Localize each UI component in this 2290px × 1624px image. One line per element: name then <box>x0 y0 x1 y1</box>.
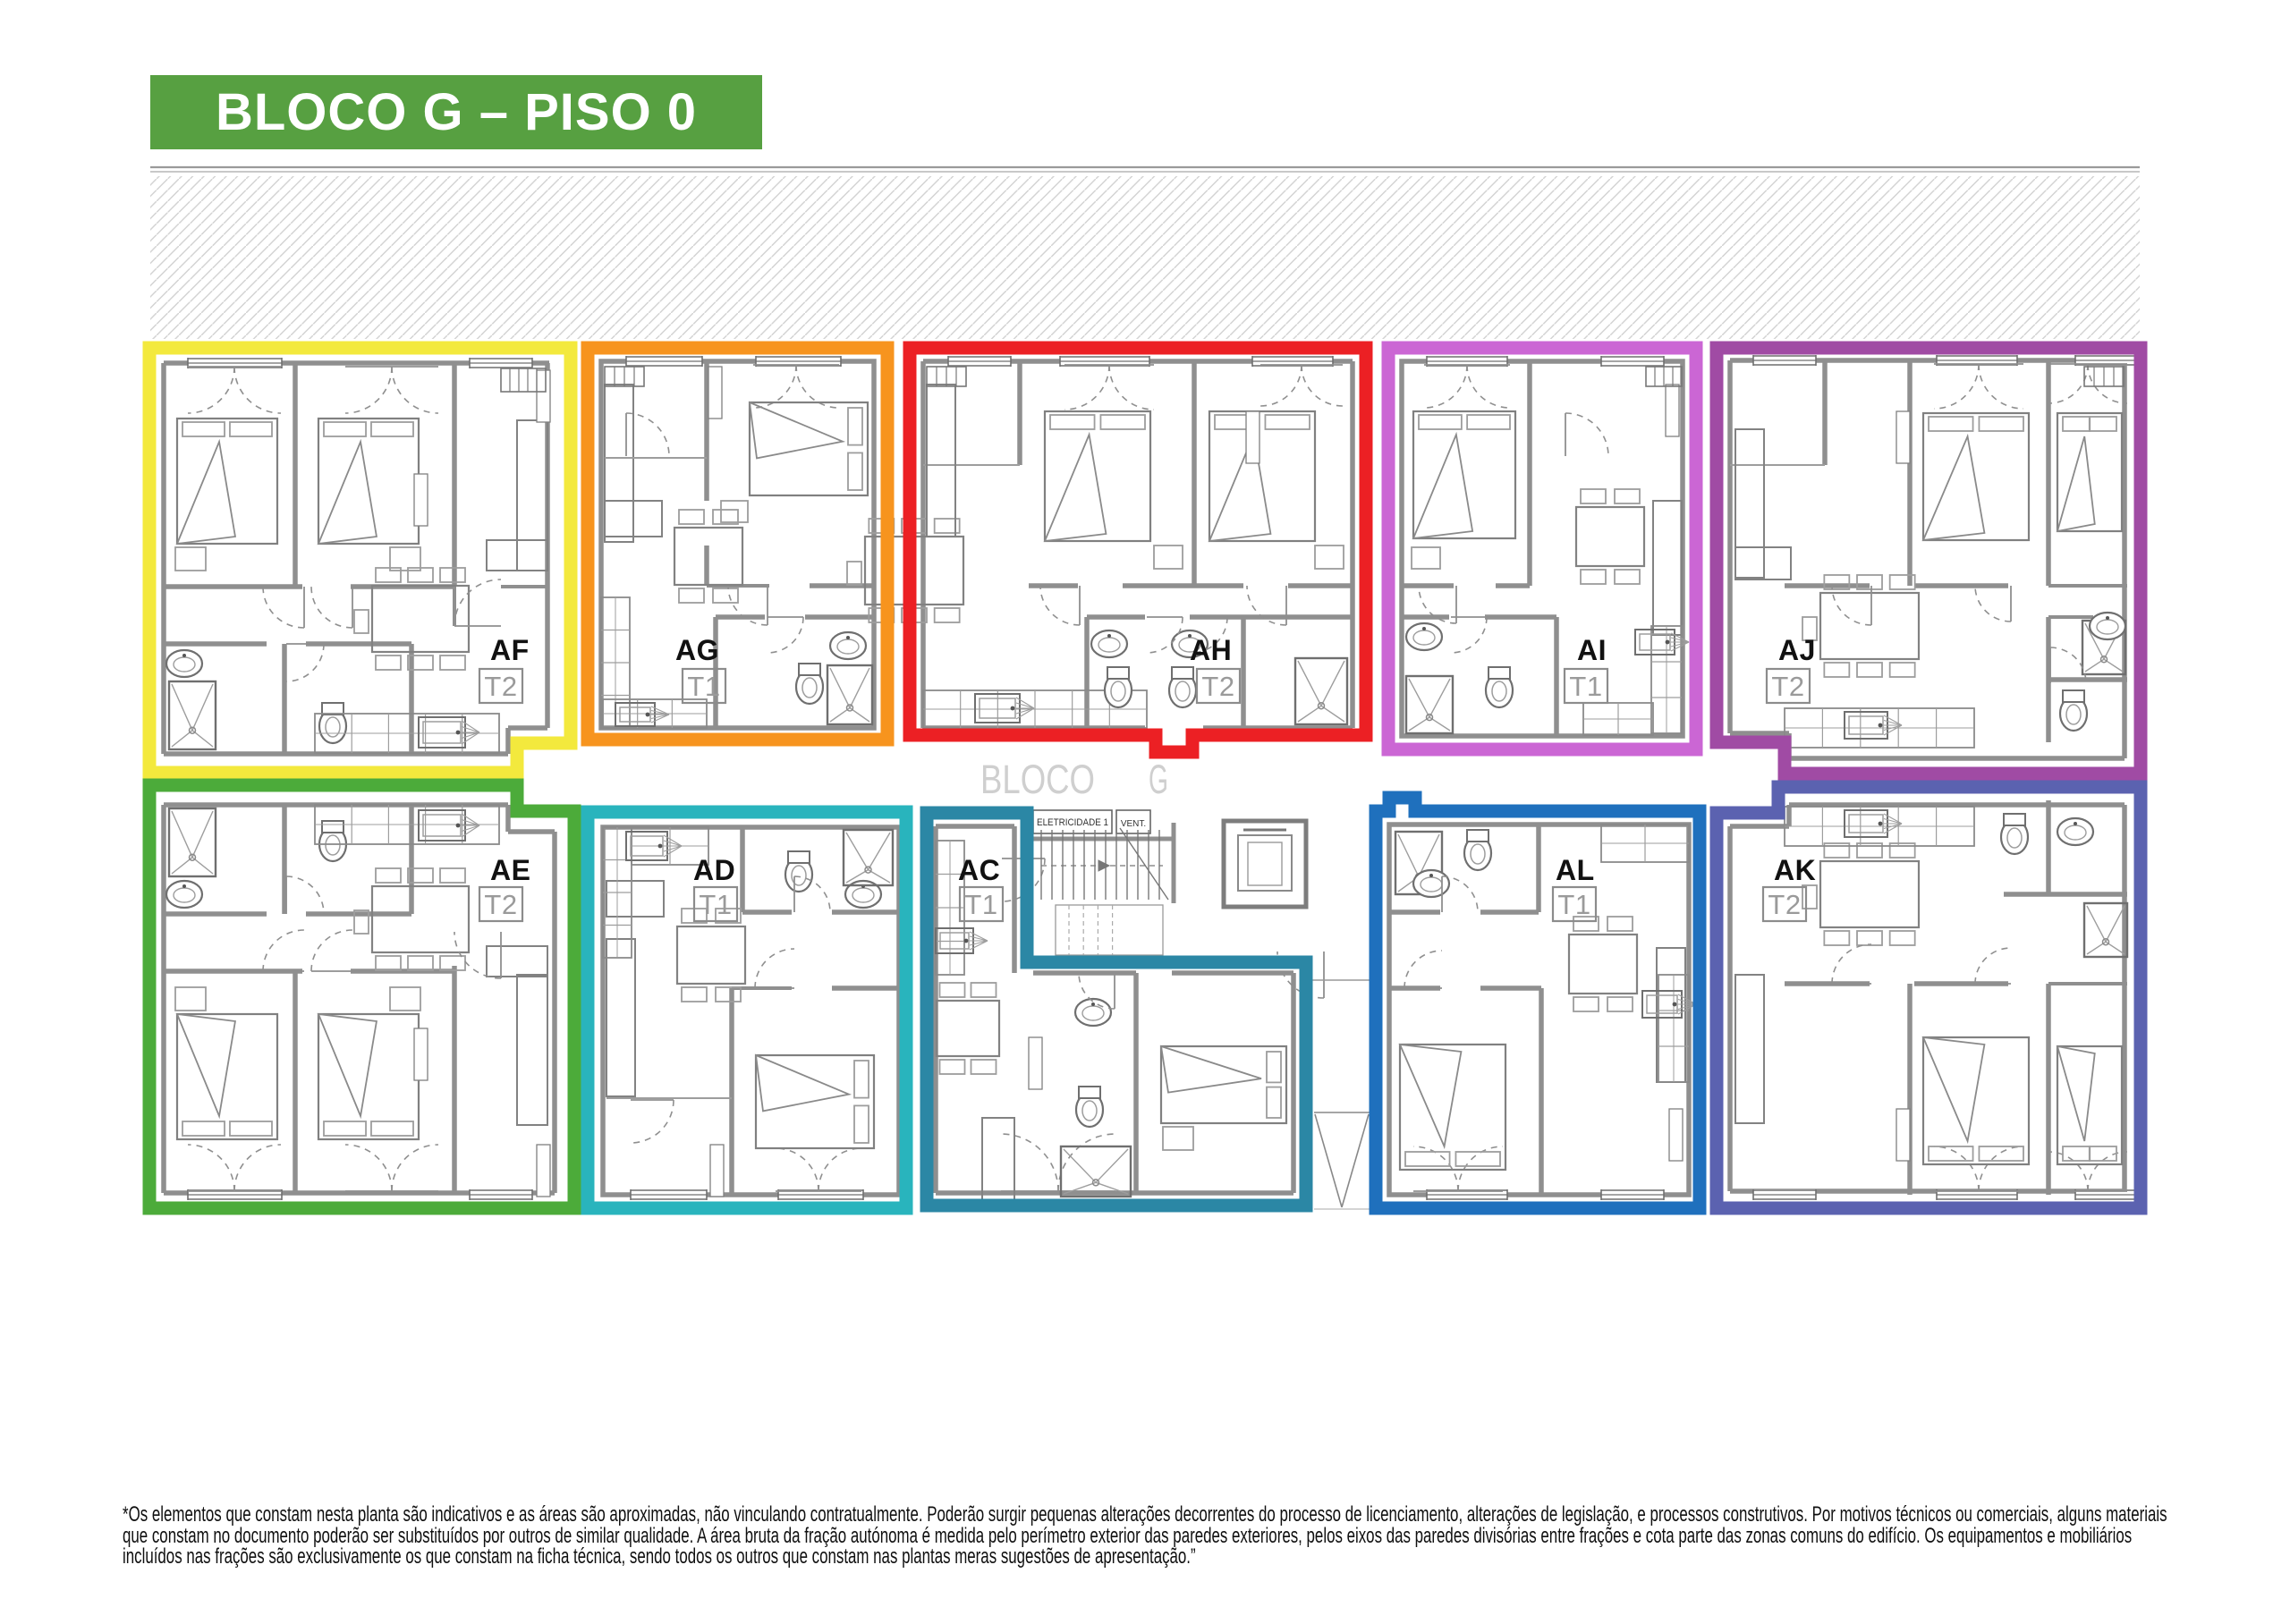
svg-text:T1: T1 <box>1557 889 1590 920</box>
svg-text:G: G <box>1149 757 1168 802</box>
svg-text:T2: T2 <box>484 889 517 920</box>
svg-text:T1: T1 <box>1569 671 1602 702</box>
svg-text:T1: T1 <box>699 889 732 920</box>
svg-text:BLOCO: BLOCO <box>980 757 1095 802</box>
svg-text:AE: AE <box>490 854 530 886</box>
svg-text:T1: T1 <box>964 889 997 920</box>
svg-text:AJ: AJ <box>1778 634 1816 666</box>
svg-text:ELETRICIDADE 1: ELETRICIDADE 1 <box>1037 817 1108 828</box>
svg-text:T1: T1 <box>687 671 720 702</box>
svg-text:AH: AH <box>1190 634 1232 666</box>
svg-text:AF: AF <box>490 634 530 666</box>
svg-text:AI: AI <box>1577 634 1607 666</box>
svg-text:T2: T2 <box>1771 671 1804 702</box>
svg-text:AK: AK <box>1774 854 1816 886</box>
svg-text:AD: AD <box>693 854 735 886</box>
svg-text:AG: AG <box>675 634 719 666</box>
svg-text:T2: T2 <box>484 671 517 702</box>
svg-text:AL: AL <box>1556 854 1595 886</box>
svg-text:T2: T2 <box>1768 889 1801 920</box>
svg-text:VENT.: VENT. <box>1121 819 1146 829</box>
svg-text:AC: AC <box>958 854 1000 886</box>
svg-text:T2: T2 <box>1201 671 1234 702</box>
